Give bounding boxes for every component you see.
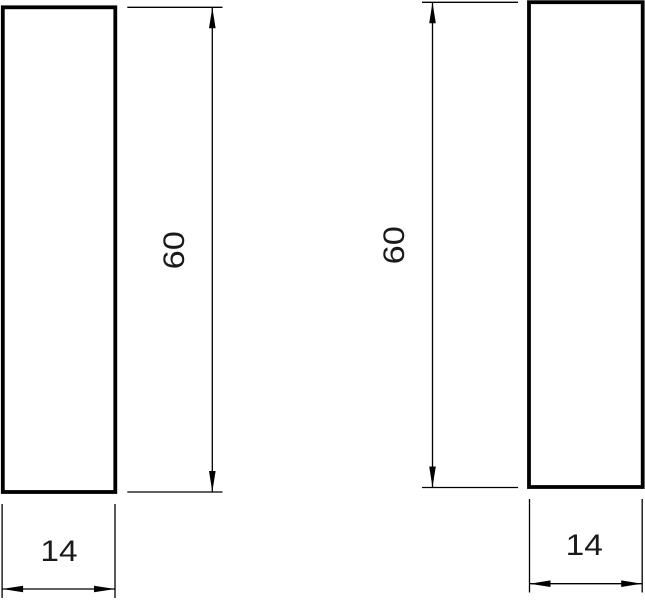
svg-text:14: 14 (40, 535, 77, 568)
svg-text:60: 60 (158, 231, 191, 269)
svg-text:14: 14 (566, 529, 603, 562)
svg-text:60: 60 (378, 226, 411, 264)
